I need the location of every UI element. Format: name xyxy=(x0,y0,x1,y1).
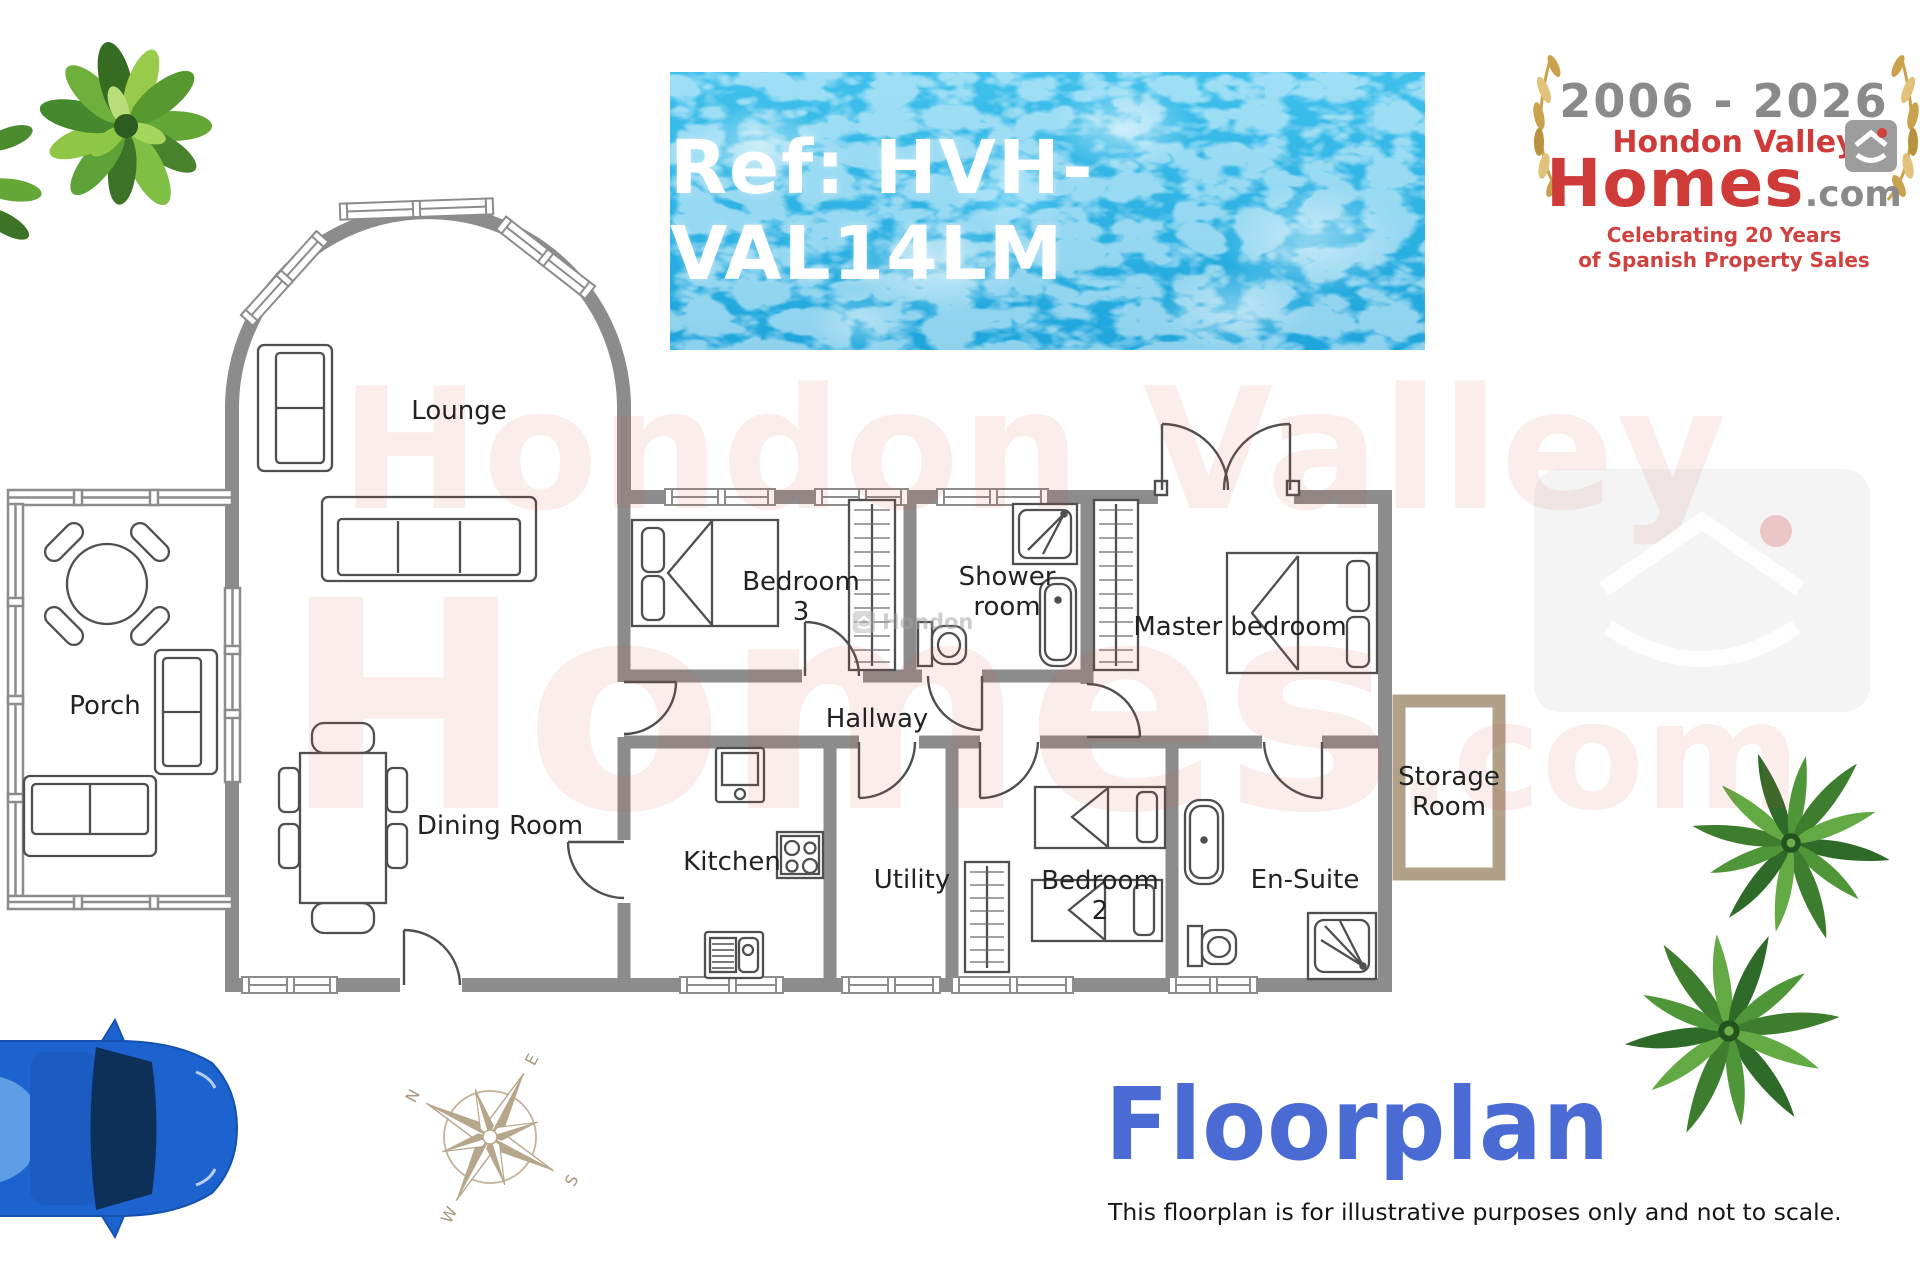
logo-name-tld: .com xyxy=(1805,174,1902,215)
room-label-porch: Porch xyxy=(69,691,141,721)
compass-north-label: N xyxy=(402,1086,424,1105)
logo-name-main: Homes xyxy=(1546,151,1804,217)
room-label-lounge: Lounge xyxy=(411,396,506,426)
room-label-storage-room-line2: Room xyxy=(1398,792,1500,822)
compass-south-label: S xyxy=(561,1171,583,1189)
reference-code: Ref: HVH-VAL14LM xyxy=(670,72,1425,350)
logo-tagline-1: Celebrating 20 Years xyxy=(1528,223,1920,248)
room-label-master-bedroom: Master bedroom xyxy=(1133,612,1346,642)
room-label-shower-room-line1: Shower xyxy=(959,562,1056,592)
agency-logo: 2006 - 2026 Hondon Valley Homes.com Cele… xyxy=(1528,76,1920,273)
room-label-bedroom-3-line1: Bedroom xyxy=(742,567,860,597)
room-label-storage-room-line1: Storage xyxy=(1398,762,1500,792)
room-label-en-suite: En-Suite xyxy=(1251,865,1360,895)
compass-west-label: W xyxy=(437,1203,461,1226)
palm-tree-top xyxy=(1674,729,1908,953)
porch-sofas xyxy=(24,650,217,856)
edge-leaves-icon xyxy=(0,120,43,246)
logo-brand: Hondon Valley Homes.com xyxy=(1528,129,1920,218)
room-label-shower-room: Shower room xyxy=(959,562,1056,622)
room-label-kitchen: Kitchen xyxy=(683,847,781,877)
room-label-bedroom-2: Bedroom 2 xyxy=(1041,866,1159,926)
room-label-dining-room: Dining Room xyxy=(417,811,583,841)
room-label-bedroom-3-line2: 3 xyxy=(742,597,860,627)
compass-east-label: E xyxy=(521,1051,543,1069)
compass-icon: N E S W xyxy=(359,1009,623,1269)
reference-banner: Ref: HVH-VAL14LM xyxy=(670,72,1425,350)
floorplan-title: Floorplan xyxy=(1105,1066,1610,1183)
floorplan-disclaimer: This floorplan is for illustrative purpo… xyxy=(1108,1198,1842,1226)
room-label-bedroom-3: Bedroom 3 xyxy=(742,567,860,627)
room-label-shower-room-line2: room xyxy=(959,592,1056,622)
room-label-utility: Utility xyxy=(874,865,950,895)
logo-house-icon xyxy=(1844,119,1898,173)
car-icon xyxy=(0,1020,237,1237)
palm-tree-bottom xyxy=(1586,883,1875,1176)
room-label-bedroom-2-line2: 2 xyxy=(1041,896,1159,926)
floorplan-flyer: N E S W xyxy=(0,0,1920,1280)
room-label-bedroom-2-line1: Bedroom xyxy=(1041,866,1159,896)
logo-tagline-2: of Spanish Property Sales xyxy=(1528,248,1920,273)
room-label-storage-room: Storage Room xyxy=(1398,762,1500,822)
room-label-hallway: Hallway xyxy=(826,704,929,734)
bush-icon xyxy=(37,39,212,212)
porch-table-chairs xyxy=(41,519,172,648)
